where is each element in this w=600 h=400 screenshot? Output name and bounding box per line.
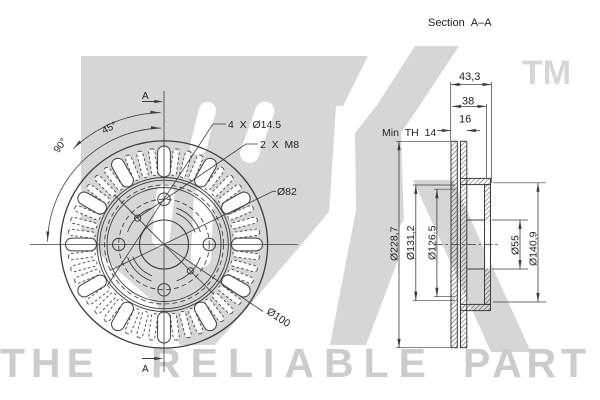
svg-text:Section A–A: Section A–A: [428, 17, 492, 29]
svg-text:Ø228,7: Ø228,7: [388, 226, 400, 261]
svg-text:Ø131,2: Ø131,2: [405, 225, 417, 260]
svg-text:90°: 90°: [52, 137, 70, 156]
svg-text:16: 16: [459, 114, 471, 126]
svg-text:Ø126.5: Ø126.5: [426, 225, 438, 260]
svg-text:Ø100: Ø100: [264, 306, 292, 330]
svg-text:Ø55: Ø55: [509, 235, 521, 255]
svg-text:43,3: 43,3: [459, 71, 480, 83]
svg-text:4 X Ø14.5: 4 X Ø14.5: [228, 119, 281, 131]
svg-text:THE: THE: [0, 340, 94, 386]
svg-text:2 X M8: 2 X M8: [260, 139, 299, 151]
svg-text:A: A: [142, 364, 149, 375]
svg-text:Min TH 14: Min TH 14: [382, 127, 436, 139]
svg-text:TM: TM: [522, 54, 571, 92]
svg-text:38: 38: [462, 96, 474, 108]
svg-text:Ø82: Ø82: [277, 186, 297, 198]
svg-text:A: A: [142, 91, 149, 102]
svg-text:RELIABLE: RELIABLE: [151, 340, 426, 386]
svg-text:Ø140,9: Ø140,9: [527, 231, 539, 266]
